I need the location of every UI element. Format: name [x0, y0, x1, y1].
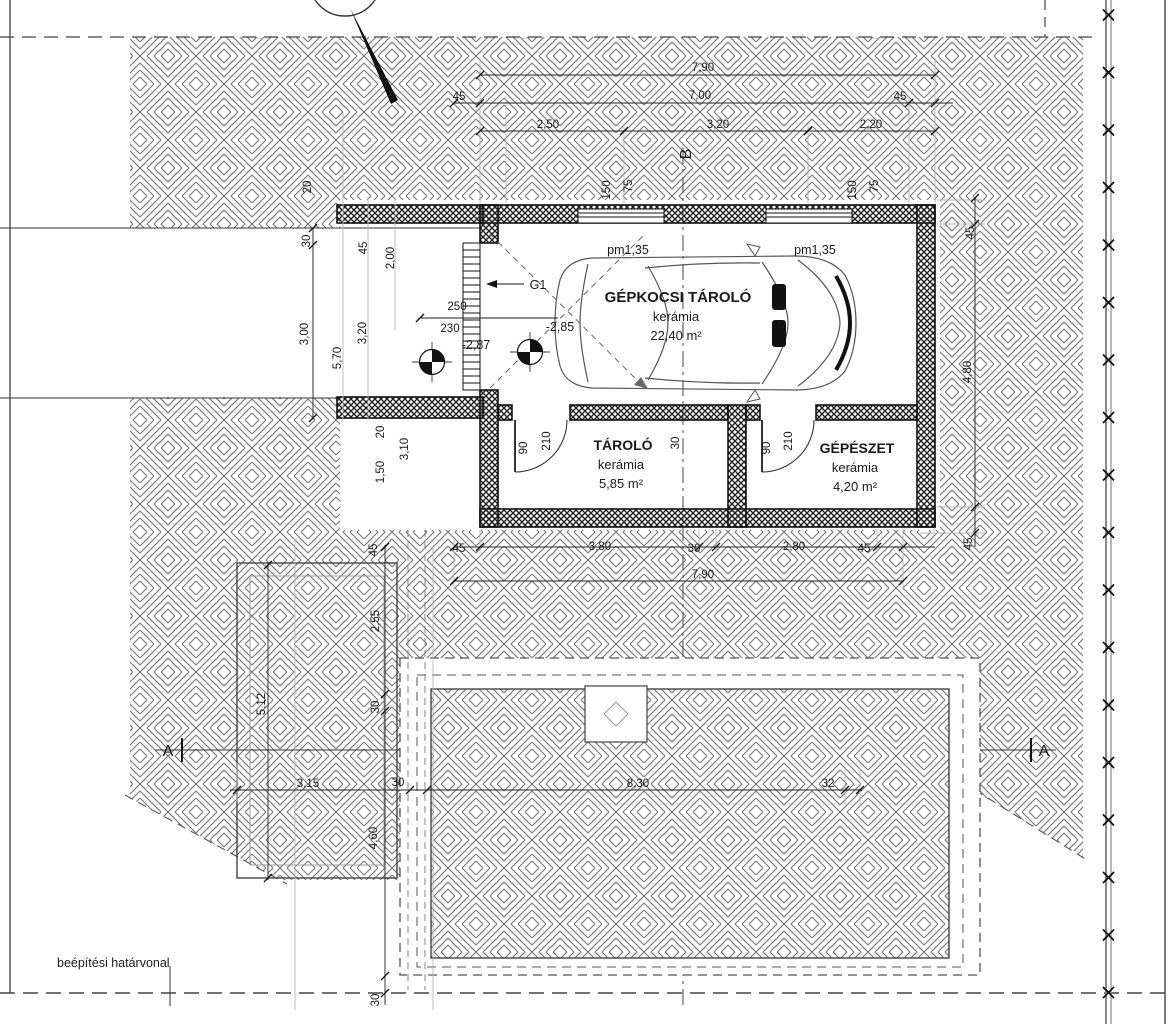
fence-x-mark: [1103, 527, 1114, 538]
fence-x-mark: [1103, 297, 1114, 308]
dim-bot-45r: 45: [858, 543, 871, 555]
dim-top-inner: 7,00: [689, 90, 711, 102]
dim-win1-h: 150: [601, 180, 613, 199]
dim-right-480: 4,80: [962, 361, 974, 383]
wall-north: [480, 205, 935, 223]
dim-midwall-30: 30: [670, 437, 682, 450]
level-mark-entry: -2,87: [462, 338, 491, 352]
garage-door-label: G1: [530, 278, 547, 292]
dim-row-32: 32: [822, 778, 835, 790]
dim-win1-sill: 75: [623, 180, 635, 193]
window-2: [766, 209, 852, 223]
dim-top-wall-right: 45: [894, 91, 907, 103]
dim-right-45t: 45: [965, 227, 977, 240]
dim-row-30: 30: [392, 777, 405, 789]
dim-left-200: 2,00: [385, 247, 397, 269]
dim-bottom-30: 30: [370, 994, 382, 1007]
north-symbol: [309, 0, 381, 16]
dim-top-wall-left: 45: [453, 91, 466, 103]
room-mechanical-finish: kerámia: [832, 460, 879, 475]
wall-south: [480, 509, 935, 527]
dim-left-300: 3,00: [299, 323, 311, 345]
room-storage-name: TÁROLÓ: [593, 436, 652, 453]
dim-left-320: 3,20: [357, 322, 369, 344]
dim-left-30: 30: [301, 235, 313, 248]
dim-right-45b: 45: [963, 538, 975, 551]
carport-wall-north: [337, 205, 483, 223]
dim-460: 4,60: [368, 827, 380, 849]
fence-x-mark: [1103, 930, 1114, 941]
room-storage-area: 5,85 m²: [599, 476, 644, 491]
dim-bot-total: 7,90: [692, 569, 714, 581]
dim-row-315: 3,15: [297, 778, 319, 790]
dim-left-20: 20: [302, 181, 314, 194]
garage-door: [463, 243, 480, 390]
floor-plan-canvas: GÉPKOCSI TÁROLÓkerámia22,40 m²TÁROLÓkerá…: [0, 0, 1176, 1024]
wall-east: [917, 205, 935, 527]
room-mechanical-name: GÉPÉSZET: [820, 440, 895, 456]
dim-bot-45l: 45: [453, 543, 466, 555]
fence-x-mark: [1103, 67, 1114, 78]
dim-bot-280: 2,80: [783, 541, 805, 553]
boundary-note: beépítési határvonal: [57, 956, 170, 970]
dim-ll-512: 5,12: [256, 693, 268, 715]
dim-ll-20: 20: [375, 426, 387, 439]
dim-left-570: 5,70: [332, 347, 344, 369]
fence-x-mark: [1103, 815, 1114, 826]
fence-x-mark: [1103, 757, 1114, 768]
fence-x-mark: [1103, 470, 1114, 481]
terrace-detail-box: [585, 686, 647, 742]
dim-win2-sill: 75: [869, 180, 881, 193]
parapet-mark-2: pm1,35: [794, 243, 836, 257]
dim-door2-h: 210: [783, 431, 795, 450]
room-garage-finish: kerámia: [653, 309, 700, 324]
fence-x-mark: [1103, 10, 1114, 21]
wall-room-separator: [728, 405, 746, 527]
section-marker-a-right: A: [1039, 743, 1050, 760]
section-marker-a-left: A: [163, 743, 174, 760]
fence-x-mark: [1103, 240, 1114, 251]
main-terrace-hatched: [431, 689, 949, 958]
floor-plan-page: GÉPKOCSI TÁROLÓkerámia22,40 m²TÁROLÓkerá…: [0, 0, 1176, 1024]
dim-door1-w: 90: [518, 442, 530, 455]
dim-door-250: 250: [447, 301, 466, 313]
room-garage-area: 22,40 m²: [650, 328, 702, 343]
dim-ll-30: 30: [370, 701, 382, 714]
fence-x-mark: [1103, 872, 1114, 883]
fence-x-mark: [1103, 585, 1114, 596]
dim-left-45: 45: [358, 242, 370, 255]
room-mechanical-area: 4,20 m²: [833, 479, 878, 494]
dim-ll-310: 3,10: [399, 438, 411, 460]
carport-wall-south: [337, 397, 483, 418]
fence-x-marks: [1103, 10, 1114, 999]
level-mark-garage: -2,85: [546, 320, 575, 334]
dim-door1-h: 210: [541, 431, 553, 450]
fence-x-mark: [1103, 700, 1114, 711]
parapet-mark-1: pm1,35: [607, 243, 649, 257]
fence-x-mark: [1103, 412, 1114, 423]
dim-row-830: 8,30: [627, 778, 649, 790]
fence-x-mark: [1103, 125, 1114, 136]
dim-bot-30: 30: [688, 543, 701, 555]
window-1: [578, 209, 664, 223]
dim-top-seg2: 3,20: [707, 119, 729, 131]
dim-ll-255: 2,55: [370, 610, 382, 632]
dim-door2-w: 90: [761, 442, 773, 455]
dim-top-seg1: 2,50: [537, 119, 559, 131]
dim-top-total: 7,90: [692, 62, 714, 74]
fence-x-mark: [1103, 355, 1114, 366]
wall-divider: [570, 405, 728, 420]
dim-bot-380: 3,80: [589, 541, 611, 553]
room-storage-finish: kerámia: [598, 457, 645, 472]
dim-ll-150: 1,50: [375, 461, 387, 483]
dim-top-seg3: 2,20: [860, 119, 882, 131]
fence-x-mark: [1103, 182, 1114, 193]
section-marker-b: B: [678, 149, 695, 160]
room-garage-name: GÉPKOCSI TÁROLÓ: [605, 288, 752, 306]
fence-x-mark: [1103, 642, 1114, 653]
dim-ll-45: 45: [368, 544, 380, 557]
dim-door-230: 230: [440, 323, 459, 335]
dim-win2-h: 150: [847, 180, 859, 199]
